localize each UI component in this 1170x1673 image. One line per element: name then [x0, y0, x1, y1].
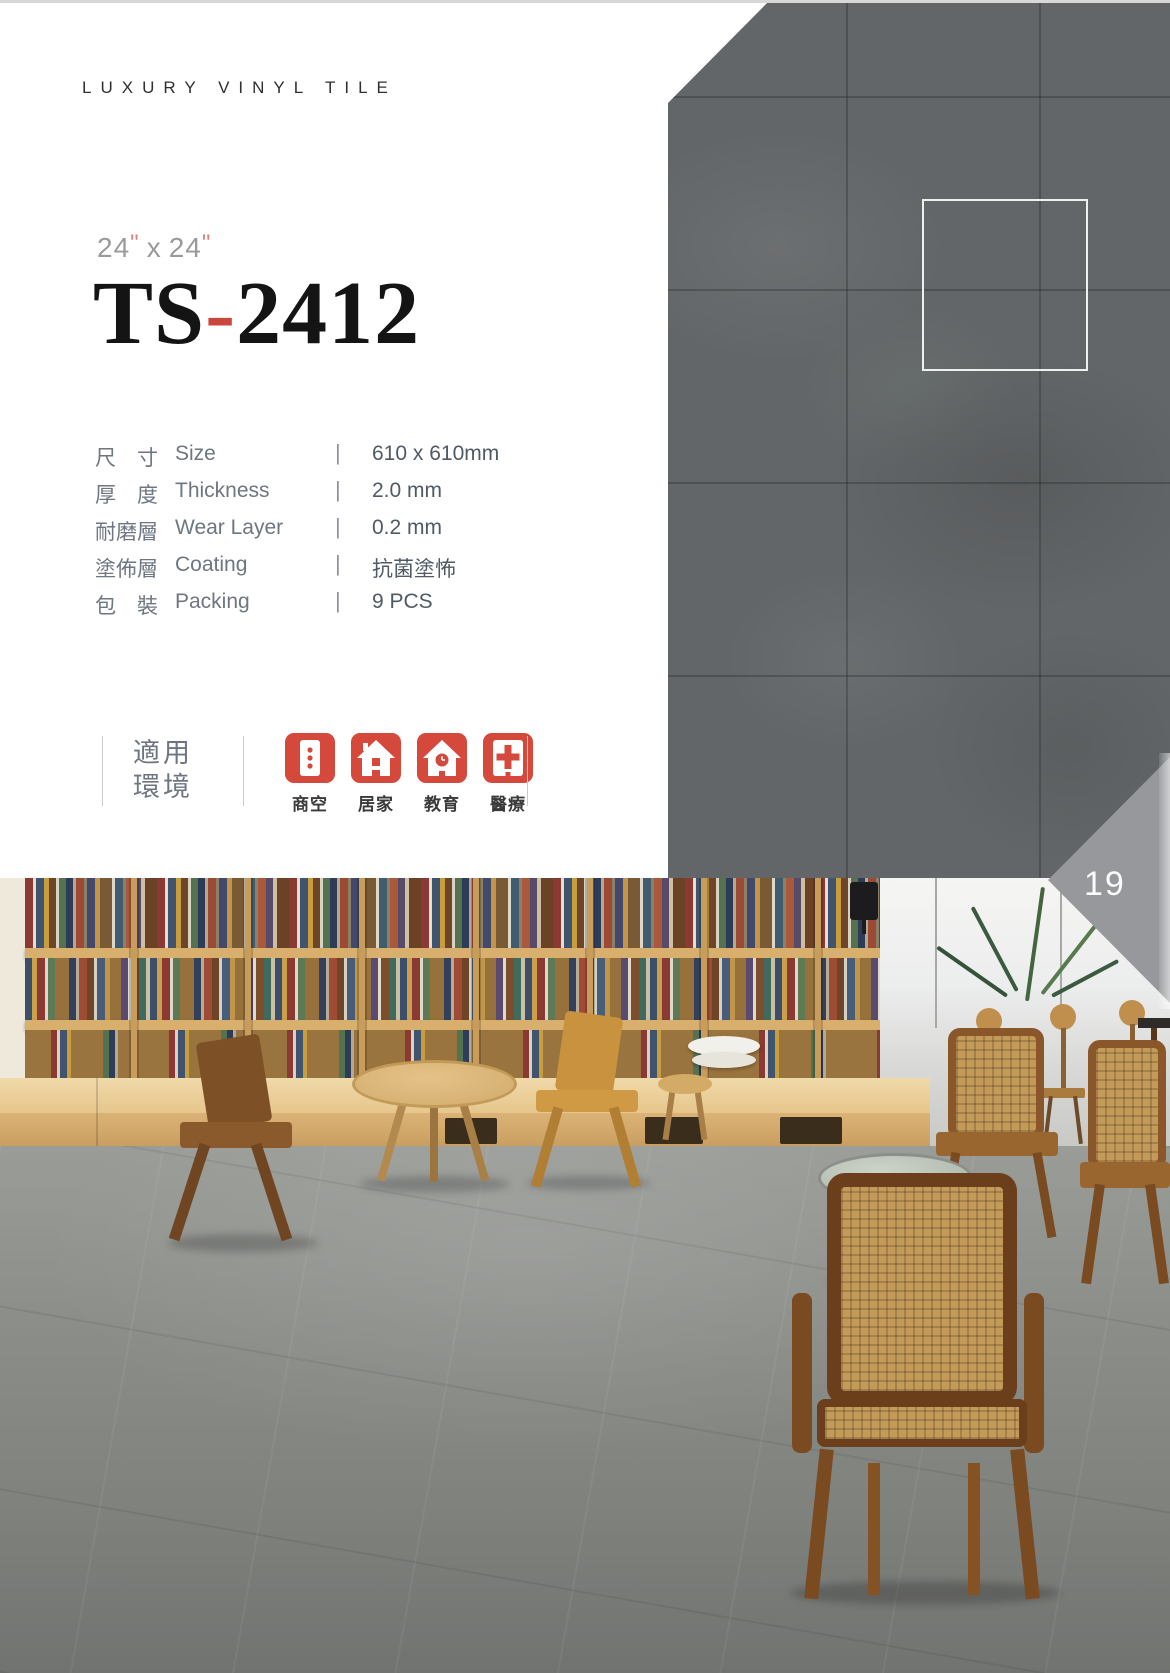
spec-label-zh: 包 裝 — [95, 590, 158, 620]
spec-row-packing: 包 裝 Packing | 9 PCS — [95, 585, 555, 622]
spec-value: 9 PCS — [372, 590, 433, 614]
spec-value: 610 x 610mm — [372, 442, 499, 466]
wall-lamp-icon — [850, 882, 878, 920]
size-separator: x — [147, 232, 162, 263]
spec-label-zh: 厚 度 — [95, 479, 158, 509]
school-icon — [417, 733, 467, 783]
product-code: TS-2412 — [93, 262, 420, 365]
wood-armchair-center — [520, 1014, 655, 1194]
spec-divider: | — [335, 514, 341, 540]
platform-cubby — [780, 1117, 842, 1144]
table-leg — [430, 1102, 438, 1182]
spec-row-wear-layer: 耐磨層 Wear Layer | 0.2 mm — [95, 511, 555, 548]
spec-label-zh: 尺 寸 — [95, 442, 158, 472]
env-title-line1: 適用 — [133, 736, 193, 770]
env-item-label: 居家 — [351, 790, 401, 815]
wood-armchair-left — [168, 1038, 318, 1253]
spec-row-size: 尺 寸 Size | 610 x 610mm — [95, 437, 555, 474]
spec-value: 0.2 mm — [372, 516, 442, 540]
step-shadow-line — [96, 1078, 98, 1146]
chair-shadow — [790, 1581, 1060, 1605]
table-leg — [459, 1100, 489, 1181]
page-top-edge — [0, 0, 1170, 3]
floor-cushion — [692, 1052, 756, 1068]
chair-seat — [536, 1090, 638, 1112]
product-code-number: 2412 — [236, 264, 420, 363]
chair-armrest — [792, 1293, 812, 1453]
spec-divider: | — [335, 477, 341, 503]
spec-label-en: Thickness — [175, 479, 270, 503]
chair-leg — [804, 1449, 834, 1600]
size-height: 24 — [169, 232, 202, 263]
table-top — [352, 1060, 517, 1108]
plant-leaf — [971, 906, 1019, 992]
size-label: 24"x24" — [97, 230, 211, 264]
env-item-commercial: 商空 — [285, 733, 335, 815]
env-title: 適用 環境 — [133, 736, 193, 804]
medical-cross-icon — [483, 733, 533, 783]
product-code-prefix: TS — [93, 264, 205, 363]
env-item-medical: 醫療 — [483, 733, 533, 815]
plant-leaf — [1025, 887, 1045, 1001]
tile-texture-swatch — [668, 0, 1170, 878]
page-right-edge — [1159, 753, 1170, 1009]
spec-value: 2.0 mm — [372, 479, 442, 503]
spec-divider: | — [335, 551, 341, 577]
spec-label-en: Size — [175, 442, 216, 466]
env-item-education: 教育 — [417, 733, 467, 815]
chair-leg — [609, 1106, 641, 1188]
chair-leg — [251, 1143, 292, 1242]
chair-seat — [817, 1399, 1027, 1447]
chair-armrest — [1024, 1293, 1044, 1453]
spec-row-coating: 塗佈層 Coating | 抗菌塗怖 — [95, 548, 555, 585]
spec-table: 尺 寸 Size | 610 x 610mm 厚 度 Thickness | 2… — [95, 437, 555, 622]
commercial-building-icon — [285, 733, 335, 783]
spec-label-zh: 耐磨層 — [95, 516, 158, 546]
env-title-line2: 環境 — [133, 770, 193, 804]
rattan-armchair-foreground — [772, 1173, 1072, 1608]
chair-shadow — [168, 1234, 318, 1252]
page-title: LUXURY VINYL TILE — [82, 78, 397, 98]
tile-outline-square — [922, 199, 1088, 371]
spec-label-en: Packing — [175, 590, 250, 614]
table-leg — [377, 1100, 407, 1181]
spec-divider: | — [335, 588, 341, 614]
chair-leg — [169, 1143, 210, 1242]
spec-label-zh: 塗佈層 — [95, 553, 158, 583]
wood-stool — [658, 1074, 712, 1144]
rattan-chair-edge — [1078, 1040, 1170, 1290]
env-item-label: 醫療 — [483, 790, 533, 815]
window-mullion — [935, 878, 937, 1028]
chair-seat — [1080, 1162, 1170, 1188]
spec-value: 抗菌塗怖 — [372, 553, 456, 583]
env-item-label: 教育 — [417, 790, 467, 815]
stool-leg — [695, 1090, 708, 1140]
product-code-hyphen: - — [205, 264, 236, 363]
stool-leg — [663, 1090, 676, 1140]
spec-row-thickness: 厚 度 Thickness | 2.0 mm — [95, 474, 555, 511]
catalog-page: LUXURY VINYL TILE 24"x24" TS-2412 尺 寸 Si… — [0, 0, 1170, 1673]
chair-back — [827, 1173, 1017, 1405]
chair-leg — [1081, 1184, 1105, 1284]
env-divider-bar — [527, 736, 528, 806]
size-width: 24 — [97, 232, 130, 263]
wall-lamp-arm — [862, 918, 866, 934]
chair-leg — [868, 1463, 880, 1595]
chair-seat — [180, 1122, 292, 1148]
chair-back — [196, 1034, 273, 1131]
spec-label-en: Coating — [175, 553, 247, 577]
tile-grout-lines — [668, 0, 1170, 878]
inch-mark: " — [130, 230, 140, 257]
home-icon — [351, 733, 401, 783]
env-item-home: 居家 — [351, 733, 401, 815]
env-divider-bar — [243, 736, 244, 806]
inch-mark: " — [202, 230, 212, 257]
chair-headrest — [1050, 1004, 1076, 1030]
chair-leg — [531, 1106, 563, 1188]
table-top — [1138, 1018, 1170, 1028]
chair-leg — [968, 1463, 980, 1595]
chair-leg — [1010, 1449, 1040, 1600]
env-divider-bar — [102, 736, 103, 806]
spec-divider: | — [335, 440, 341, 466]
page-number: 19 — [1084, 865, 1126, 904]
spec-label-en: Wear Layer — [175, 516, 283, 540]
coffee-table — [352, 1060, 517, 1195]
chair-back — [1088, 1040, 1166, 1170]
chair-leg — [1145, 1184, 1169, 1284]
room-photo — [0, 878, 1170, 1673]
chair-back — [555, 1010, 624, 1097]
env-item-label: 商空 — [285, 790, 335, 815]
stool-top — [658, 1074, 712, 1094]
chair-back — [948, 1028, 1044, 1140]
